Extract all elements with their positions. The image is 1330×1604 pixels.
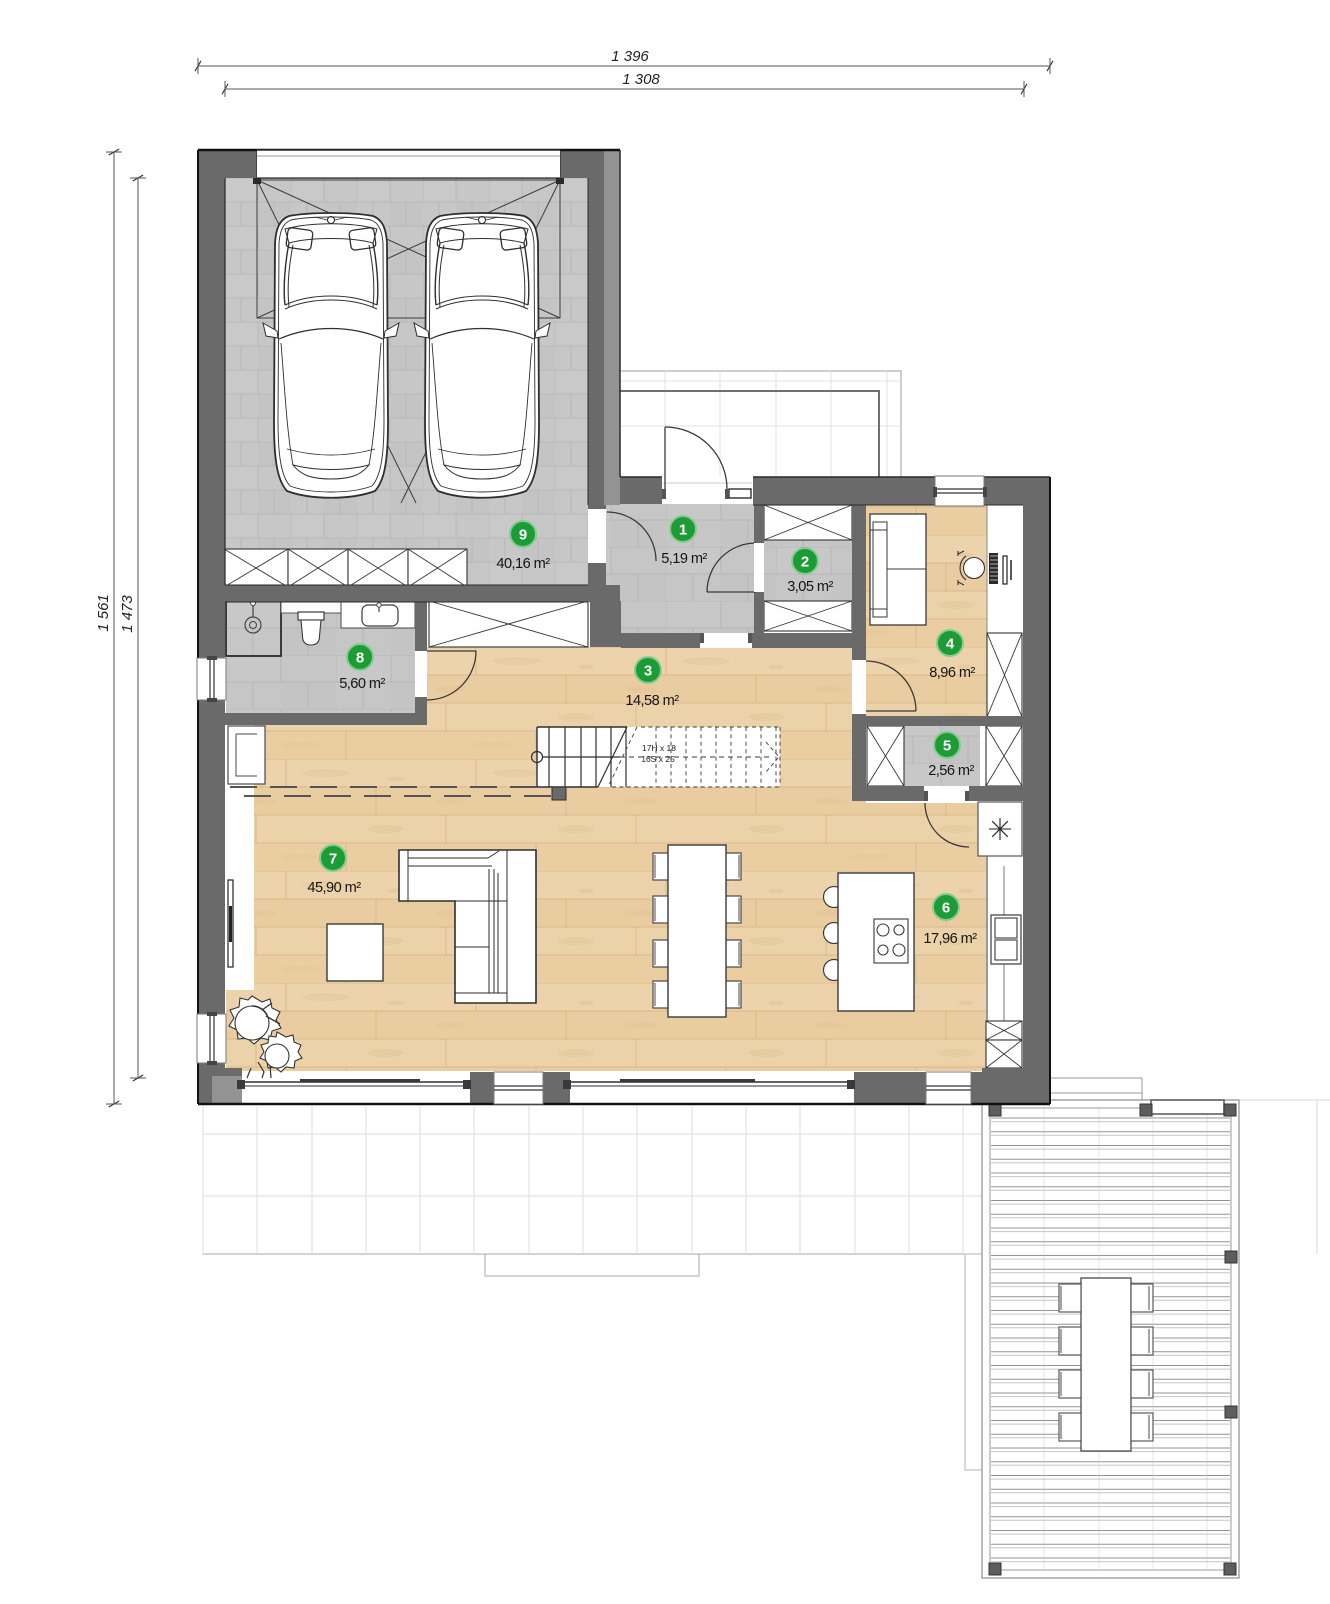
svg-text:3,05 m²: 3,05 m² — [787, 579, 833, 595]
svg-text:1 308: 1 308 — [622, 71, 660, 88]
svg-text:17,96 m²: 17,96 m² — [923, 931, 977, 947]
svg-text:8: 8 — [356, 650, 364, 667]
svg-text:2,56 m²: 2,56 m² — [928, 763, 974, 779]
svg-text:1 561: 1 561 — [95, 594, 112, 632]
svg-text:3: 3 — [644, 663, 652, 680]
svg-text:1 396: 1 396 — [611, 48, 649, 65]
svg-text:9: 9 — [519, 527, 527, 544]
svg-text:5,60 m²: 5,60 m² — [339, 676, 385, 692]
svg-text:5: 5 — [943, 738, 951, 755]
svg-text:17H x 18: 17H x 18 — [642, 743, 676, 753]
svg-text:7: 7 — [329, 851, 337, 868]
svg-text:6: 6 — [942, 900, 950, 917]
svg-text:1: 1 — [679, 522, 687, 539]
svg-text:14,58 m²: 14,58 m² — [625, 693, 679, 709]
svg-text:16S x 25: 16S x 25 — [641, 754, 675, 764]
svg-text:5,19 m²: 5,19 m² — [661, 551, 707, 567]
svg-text:1 473: 1 473 — [119, 595, 136, 633]
svg-text:4: 4 — [946, 636, 955, 653]
svg-text:40,16 m²: 40,16 m² — [496, 556, 550, 572]
svg-text:8,96 m²: 8,96 m² — [929, 665, 975, 681]
svg-text:45,90 m²: 45,90 m² — [307, 880, 361, 896]
svg-text:2: 2 — [801, 554, 809, 571]
